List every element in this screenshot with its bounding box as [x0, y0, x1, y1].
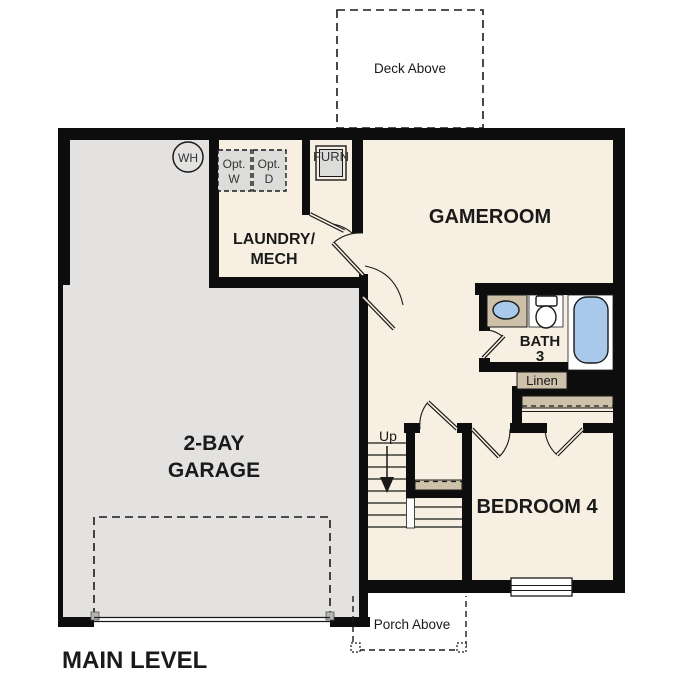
porch-post [457, 643, 466, 652]
wall-segment [475, 283, 613, 295]
wall-segment [406, 490, 466, 498]
toilet-bowl-icon [536, 306, 556, 328]
wall-segment [583, 423, 613, 433]
opt-dryer-label: D [265, 172, 274, 186]
water-heater-label: WH [178, 151, 198, 165]
garage-door-end [326, 612, 334, 620]
garage-label-line1: 2-BAY [183, 432, 244, 455]
stairs-up-label: Up [379, 428, 397, 444]
opt-washer-label: Opt. [223, 157, 246, 171]
gameroom-label: GAMEROOM [429, 206, 551, 228]
bath-label-line2: 3 [536, 348, 544, 365]
floorplan-page: Deck Above [0, 0, 687, 687]
understair-closet [415, 480, 462, 490]
wall-segment [58, 617, 94, 627]
sink-icon [493, 301, 519, 319]
wall-segment [302, 140, 310, 215]
wall-segment [479, 362, 570, 372]
wall-segment [58, 283, 63, 627]
wall-segment [209, 140, 219, 288]
porch-label: Porch Above [374, 617, 451, 632]
wall-segment [352, 140, 363, 233]
window-symbol [511, 578, 572, 596]
wall-segment [209, 277, 368, 288]
linen-label: Linen [526, 373, 558, 388]
porch-post [351, 643, 360, 652]
floorplan-drawing: Deck Above [0, 0, 687, 687]
wall-segment [613, 128, 625, 593]
toilet-tank-icon [536, 296, 557, 306]
stair-rail-gap [407, 498, 415, 528]
deck-label: Deck Above [374, 61, 446, 76]
opt-dryer-label: Opt. [258, 157, 281, 171]
wall-segment [406, 423, 415, 497]
wall-segment [359, 580, 472, 593]
opt-washer-label: W [228, 172, 240, 186]
wall-segment [58, 128, 625, 140]
bedroom-label: BEDROOM 4 [476, 496, 598, 518]
deck-above-area: Deck Above [337, 10, 483, 128]
wall-segment [510, 423, 547, 433]
garage-label-line2: GARAGE [168, 459, 260, 482]
wall-segment [58, 128, 70, 285]
garage-door-end [91, 612, 99, 620]
tub-icon [574, 297, 608, 363]
wall-segment [462, 428, 472, 580]
bedroom-window [511, 578, 572, 596]
linen-closet: Linen [517, 372, 567, 389]
page-title: MAIN LEVEL [62, 647, 207, 674]
furnace-label: FURN [313, 149, 349, 164]
laundry-label-line1: LAUNDRY/ [233, 231, 316, 248]
laundry-label-line2: MECH [250, 251, 297, 268]
wall-segment [359, 274, 368, 627]
